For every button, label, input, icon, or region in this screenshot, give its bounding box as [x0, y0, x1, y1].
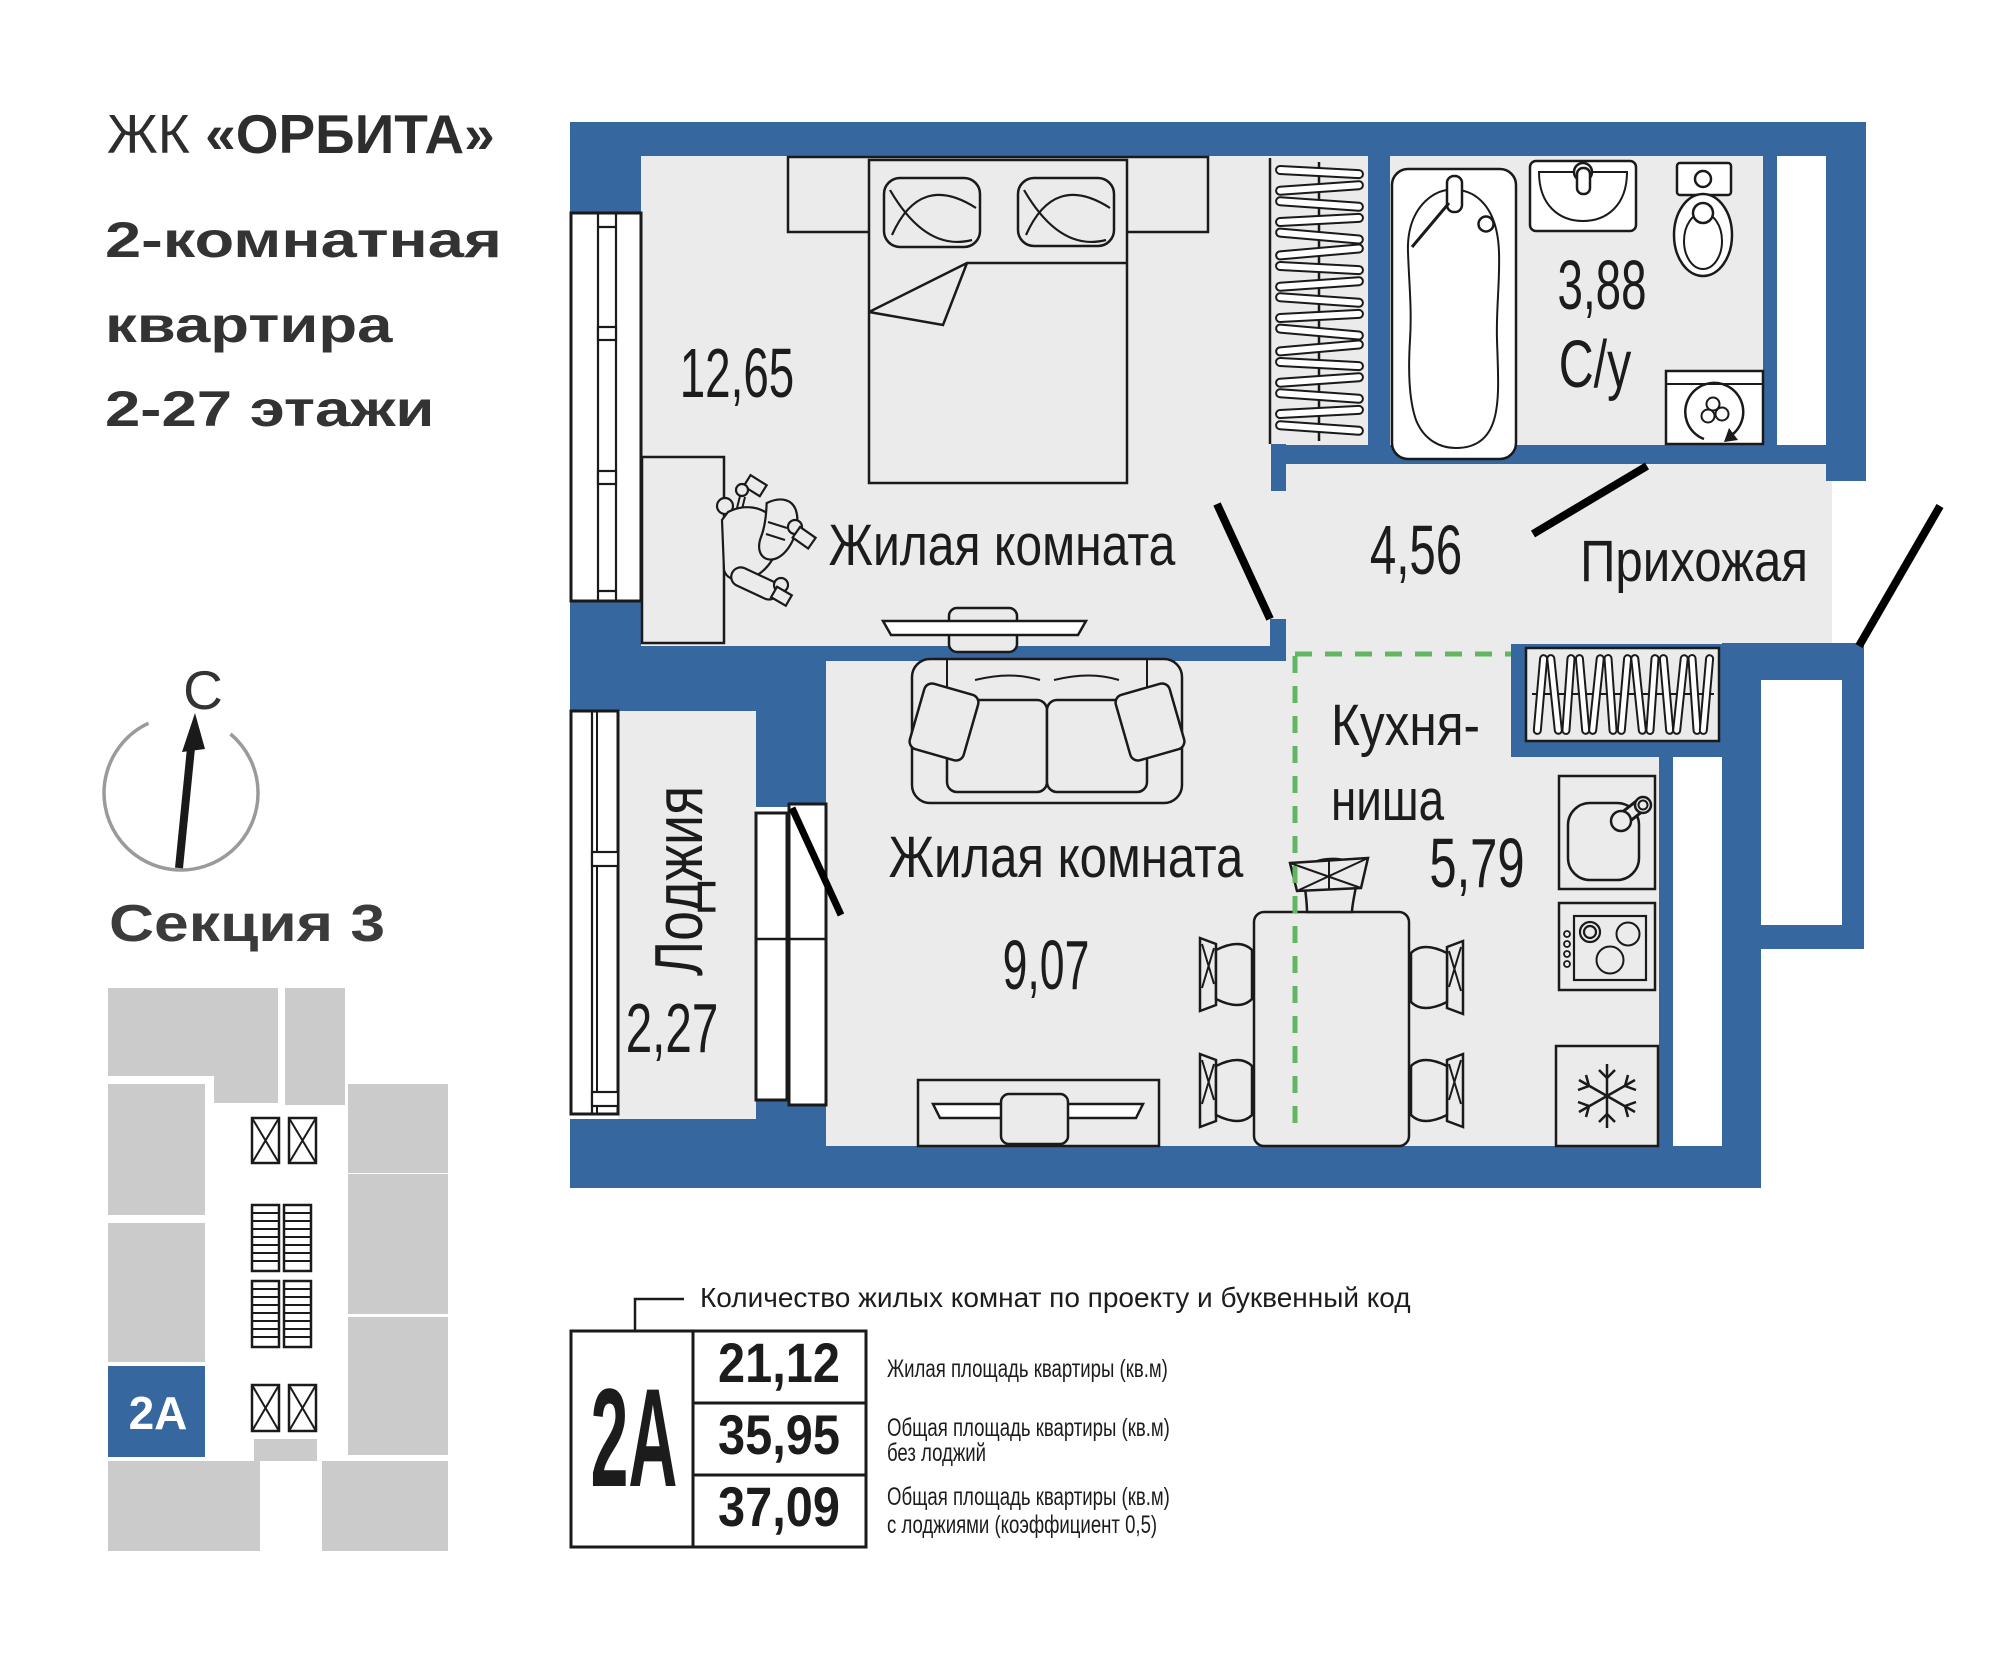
svg-text:Жилая комната: Жилая комната — [889, 825, 1244, 890]
svg-text:2А: 2А — [129, 1387, 188, 1439]
svg-text:21,12: 21,12 — [718, 1332, 840, 1395]
svg-text:С: С — [183, 659, 223, 721]
svg-text:Секция 3: Секция 3 — [109, 895, 385, 953]
svg-text:2-комнатная: 2-комнатная — [105, 213, 502, 268]
svg-text:2-27 этажи: 2-27 этажи — [105, 381, 434, 437]
svg-text:Количество жилых комнат по про: Количество жилых комнат по проекту и бук… — [700, 1282, 1411, 1313]
svg-text:35,95: 35,95 — [718, 1404, 840, 1467]
svg-text:4,56: 4,56 — [1370, 511, 1462, 589]
svg-text:3,88: 3,88 — [1558, 245, 1647, 324]
svg-text:без лоджий: без лоджий — [887, 1438, 986, 1466]
svg-text:9,07: 9,07 — [1003, 927, 1090, 1005]
svg-text:2,27: 2,27 — [626, 989, 719, 1067]
svg-text:12,65: 12,65 — [680, 333, 795, 412]
svg-text:2А: 2А — [591, 1360, 678, 1517]
svg-text:ЖК «ОРБИТА»: ЖК «ОРБИТА» — [107, 103, 495, 165]
svg-text:Кухня-: Кухня- — [1331, 693, 1480, 758]
svg-text:квартира: квартира — [105, 297, 394, 353]
svg-text:Лоджия: Лоджия — [641, 786, 716, 976]
svg-text:с лоджиями (коэффициент 0,5): с лоджиями (коэффициент 0,5) — [887, 1510, 1157, 1538]
svg-text:С/у: С/у — [1559, 328, 1632, 402]
svg-text:Жилая площадь квартиры (кв.м): Жилая площадь квартиры (кв.м) — [887, 1354, 1168, 1382]
svg-text:Прихожая: Прихожая — [1580, 529, 1808, 594]
svg-text:37,09: 37,09 — [718, 1476, 840, 1539]
svg-text:5,79: 5,79 — [1429, 823, 1524, 902]
svg-text:ниша: ниша — [1331, 769, 1445, 833]
svg-text:Жилая комната: Жилая комната — [829, 514, 1176, 578]
svg-text:Общая площадь квартиры (кв.м): Общая площадь квартиры (кв.м) — [887, 1482, 1170, 1510]
